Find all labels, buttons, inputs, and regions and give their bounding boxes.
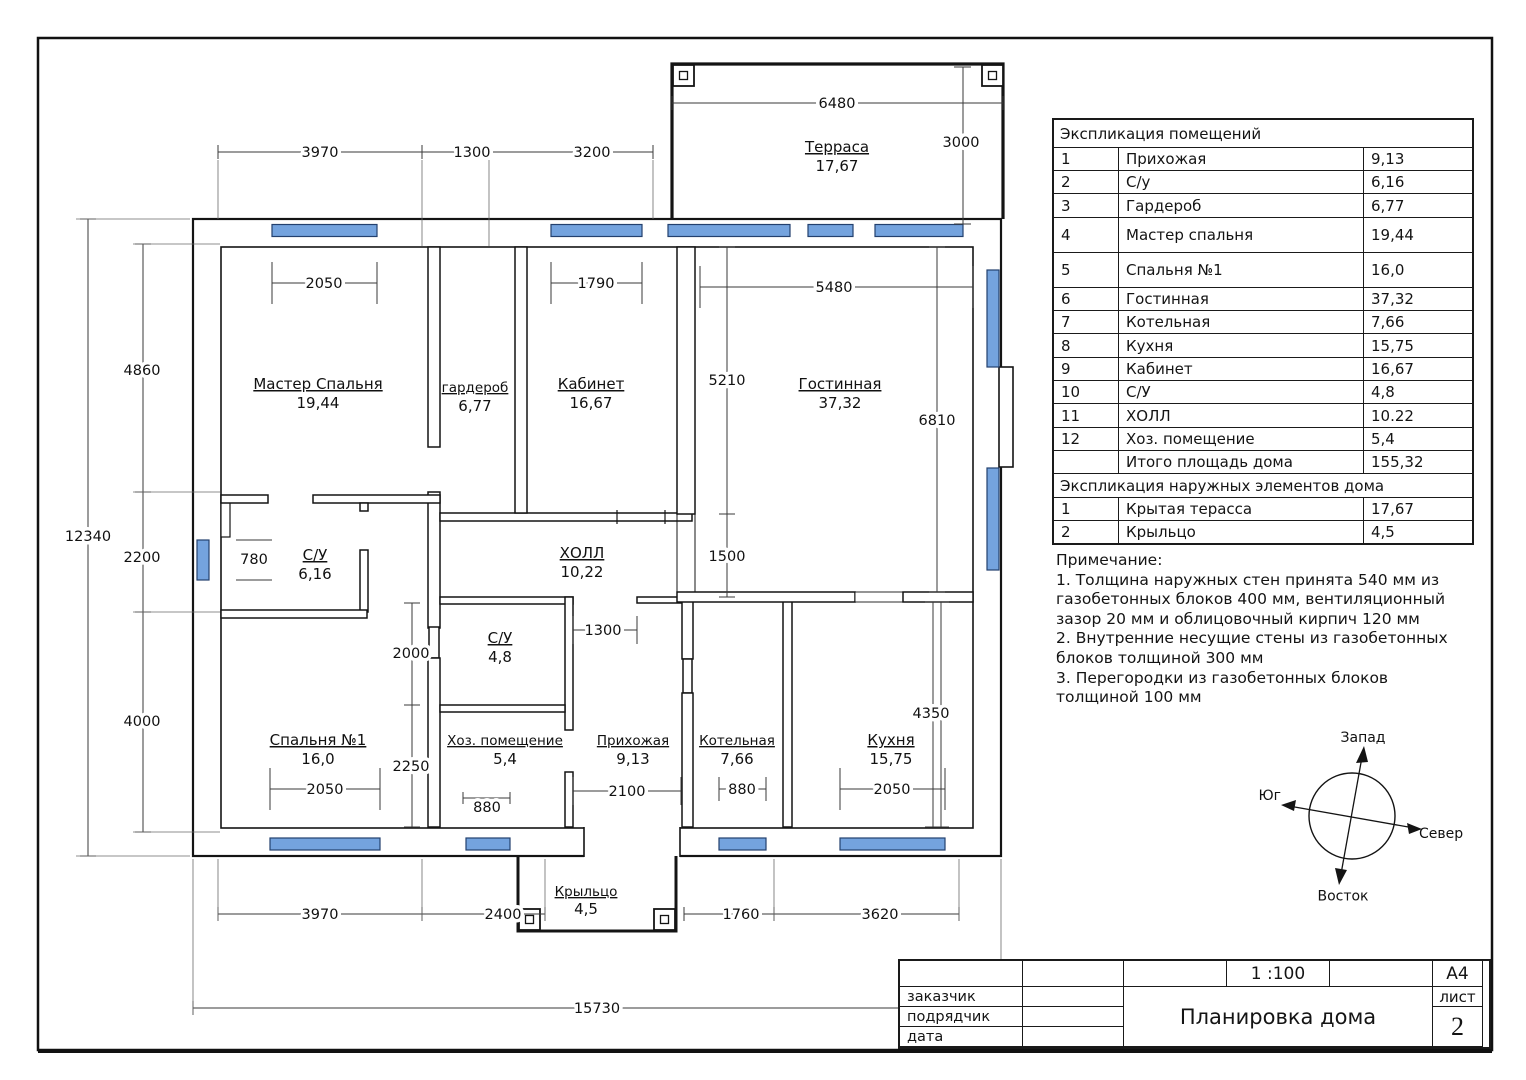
notes-line: газобетонных блоков 400 мм, вентиляционн… (1056, 590, 1501, 610)
room-wardrobe-area: 6,77 (458, 397, 491, 415)
room-cabinet-name: Кабинет (558, 375, 625, 393)
room-hall-name: ХОЛЛ (560, 544, 605, 562)
window-bedroom1 (270, 838, 380, 850)
dim-left-4860: 4860 (124, 363, 161, 379)
format-label: А4 (1433, 961, 1483, 987)
compass-arrow-east (1335, 868, 1347, 885)
window-boiler (719, 838, 766, 850)
room-living-area: 37,32 (819, 394, 862, 412)
window-master (272, 225, 377, 237)
dim-living-6810: 6810 (919, 413, 956, 429)
room-entry-area: 9,13 (616, 750, 649, 768)
room-wardrobe-name: гардероб (442, 380, 509, 396)
table-row-total: Итого площадь дома155,32 (1054, 451, 1472, 474)
window-living-2 (808, 225, 853, 237)
explication-title: Экспликация помещений (1054, 120, 1472, 148)
room-utility-name: Хоз. помещение (447, 733, 563, 749)
notes-title: Примечание: (1056, 551, 1501, 571)
door-frame-boiler (683, 659, 692, 693)
dim-su1-780: 780 (240, 552, 268, 568)
dim-living-5210: 5210 (709, 373, 746, 389)
dim-mid-2250: 2250 (393, 759, 430, 775)
sheet-word: лист (1433, 987, 1483, 1007)
room-utility-area: 5,4 (493, 750, 517, 768)
window-cabinet (551, 225, 642, 237)
room-bedroom1-area: 16,0 (301, 750, 334, 768)
notes-line: 3. Перегородки из газобетонных блоков (1056, 669, 1501, 689)
window-kitchen (840, 838, 945, 850)
dim-mid-2000: 2000 (393, 646, 430, 662)
compass: Запад Юг Север Восток (1259, 730, 1464, 905)
drawing-title: Планировка дома (1124, 987, 1433, 1047)
title-block-cell (1023, 961, 1124, 987)
table-row: 2Крыльцо4,5 (1054, 521, 1472, 543)
dim-utility-880: 880 (473, 800, 501, 816)
room-entry-name: Прихожая (597, 733, 669, 749)
table-row: 1Прихожая9,13 (1054, 148, 1472, 171)
window-living-1 (668, 225, 790, 237)
table-row: 4Мастер спальня19,44 (1054, 218, 1472, 253)
dim-left-12340: 12340 (65, 529, 111, 545)
compass-arrow-west (1356, 746, 1368, 763)
dim-bottom-3970: 3970 (302, 907, 339, 923)
window-utility (466, 838, 510, 850)
dim-kitchen-2050: 2050 (874, 782, 911, 798)
scale-value: 1 :100 (1227, 961, 1330, 987)
dim-terrace-6480: 6480 (819, 96, 856, 112)
compass-label-west: Запад (1341, 730, 1386, 746)
door-frame-su2 (429, 627, 439, 658)
customer-label: заказчик (900, 987, 1023, 1007)
compass-arrow-south (1281, 800, 1296, 811)
title-block-cell (1330, 961, 1433, 987)
dim-entry-2100: 2100 (609, 784, 646, 800)
room-bedroom1-name: Спальня №1 (270, 731, 367, 749)
dim-bedroom-2050: 2050 (307, 782, 344, 798)
compass-label-south: Юг (1259, 788, 1281, 804)
window-living-3 (875, 225, 963, 237)
table-row: 1Крытая терасса17,67 (1054, 498, 1472, 521)
dim-top-3970: 3970 (302, 145, 339, 161)
table-row: 12Хоз. помещение5,4 (1054, 428, 1472, 451)
explication-external-title: Экспликация наружных элементов дома (1054, 474, 1472, 498)
table-row: 3Гардероб6,77 (1054, 194, 1472, 218)
notes-line: 2. Внутренние несущие стены из газобетон… (1056, 629, 1501, 649)
room-kitchen-name: Кухня (867, 731, 914, 749)
dim-bottom-1760: 1760 (723, 907, 760, 923)
compass-label-east: Восток (1317, 889, 1368, 905)
room-cabinet-area: 16,67 (570, 394, 613, 412)
room-terrace-area: 17,67 (816, 157, 859, 175)
room-su1-name: С/У (303, 546, 328, 564)
table-row: 8Кухня15,75 (1054, 334, 1472, 358)
notes-block: Примечание: 1. Толщина наружных стен при… (1056, 551, 1501, 708)
notes-line: 1. Толщина наружных стен принята 540 мм … (1056, 571, 1501, 591)
room-su1-area: 6,16 (298, 565, 331, 583)
table-row: 10С/У4,8 (1054, 381, 1472, 404)
room-terrace-name: Терраса (804, 138, 869, 156)
sheet-number: 2 (1433, 1007, 1483, 1047)
room-boiler-area: 7,66 (720, 750, 753, 768)
dim-master-2050: 2050 (306, 276, 343, 292)
room-porch-area: 4,5 (574, 900, 598, 918)
table-row: 7Котельная7,66 (1054, 311, 1472, 334)
title-block-cell (900, 961, 1023, 987)
dim-top-3200: 3200 (574, 145, 611, 161)
room-master-name: Мастер Спальня (253, 375, 382, 393)
notes-line: зазор 20 мм и облицовочный кирпич 120 мм (1056, 610, 1501, 630)
room-boiler-name: Котельная (699, 733, 775, 749)
room-hall-area: 10,22 (561, 563, 604, 581)
notes-line: блоков толщиной 300 мм (1056, 649, 1501, 669)
contractor-value-cell (1023, 1007, 1124, 1027)
dim-bottom-2400: 2400 (485, 907, 522, 923)
dim-bottom-3620: 3620 (862, 907, 899, 923)
dim-living-5480: 5480 (816, 280, 853, 296)
date-value-cell (1023, 1027, 1124, 1047)
customer-value-cell (1023, 987, 1124, 1007)
title-block: 1 :100 А4 заказчик Планировка дома лист … (898, 959, 1491, 1049)
room-su2-area: 4,8 (488, 648, 512, 666)
table-row: 11ХОЛЛ10.22 (1054, 404, 1472, 428)
dim-top-1300: 1300 (454, 145, 491, 161)
room-kitchen-area: 15,75 (870, 750, 913, 768)
window-su1 (197, 540, 209, 580)
explication-table: Экспликация помещений 1Прихожая9,13 2С/у… (1052, 118, 1474, 545)
dim-terrace-3000: 3000 (943, 135, 980, 151)
table-row: 5Спальня №116,0 (1054, 253, 1472, 288)
notes-line: толщиной 100 мм (1056, 688, 1501, 708)
window-right-1 (987, 270, 999, 367)
contractor-label: подрядчик (900, 1007, 1023, 1027)
room-porch-name: Крыльцо (555, 884, 618, 900)
dim-left-2200: 2200 (124, 550, 161, 566)
table-row: 6Гостинная37,32 (1054, 288, 1472, 311)
dim-total-15730: 15730 (574, 1001, 620, 1017)
compass-label-north: Север (1419, 826, 1463, 842)
dim-left-4000: 4000 (124, 714, 161, 730)
drawing-sheet: 3970 1300 3200 6480 3000 12340 4860 2200… (0, 0, 1526, 1080)
table-row: 9Кабинет16,67 (1054, 358, 1472, 381)
room-living-name: Гостинная (799, 375, 882, 393)
dim-cabinet-1790: 1790 (578, 276, 615, 292)
table-row: 2С/у6,16 (1054, 171, 1472, 194)
room-master-area: 19,44 (297, 394, 340, 412)
dim-kitchen-4350: 4350 (913, 706, 950, 722)
room-su2-name: С/У (488, 629, 513, 647)
title-block-cell (1124, 961, 1227, 987)
dim-living-1500: 1500 (709, 549, 746, 565)
window-right-2 (987, 468, 999, 570)
date-label: дата (900, 1027, 1023, 1047)
dim-boiler-880: 880 (728, 782, 756, 798)
dim-su2-1300: 1300 (585, 623, 622, 639)
